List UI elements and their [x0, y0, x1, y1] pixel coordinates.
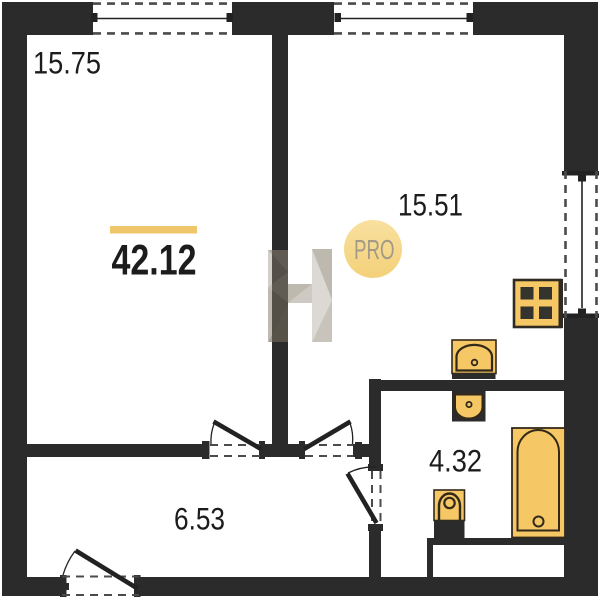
svg-text:6.53: 6.53: [174, 501, 225, 537]
svg-text:42.12: 42.12: [112, 237, 197, 285]
svg-text:PRO: PRO: [354, 234, 395, 265]
svg-text:4.32: 4.32: [429, 443, 482, 479]
svg-text:15.51: 15.51: [398, 187, 463, 223]
svg-text:15.75: 15.75: [33, 45, 101, 81]
